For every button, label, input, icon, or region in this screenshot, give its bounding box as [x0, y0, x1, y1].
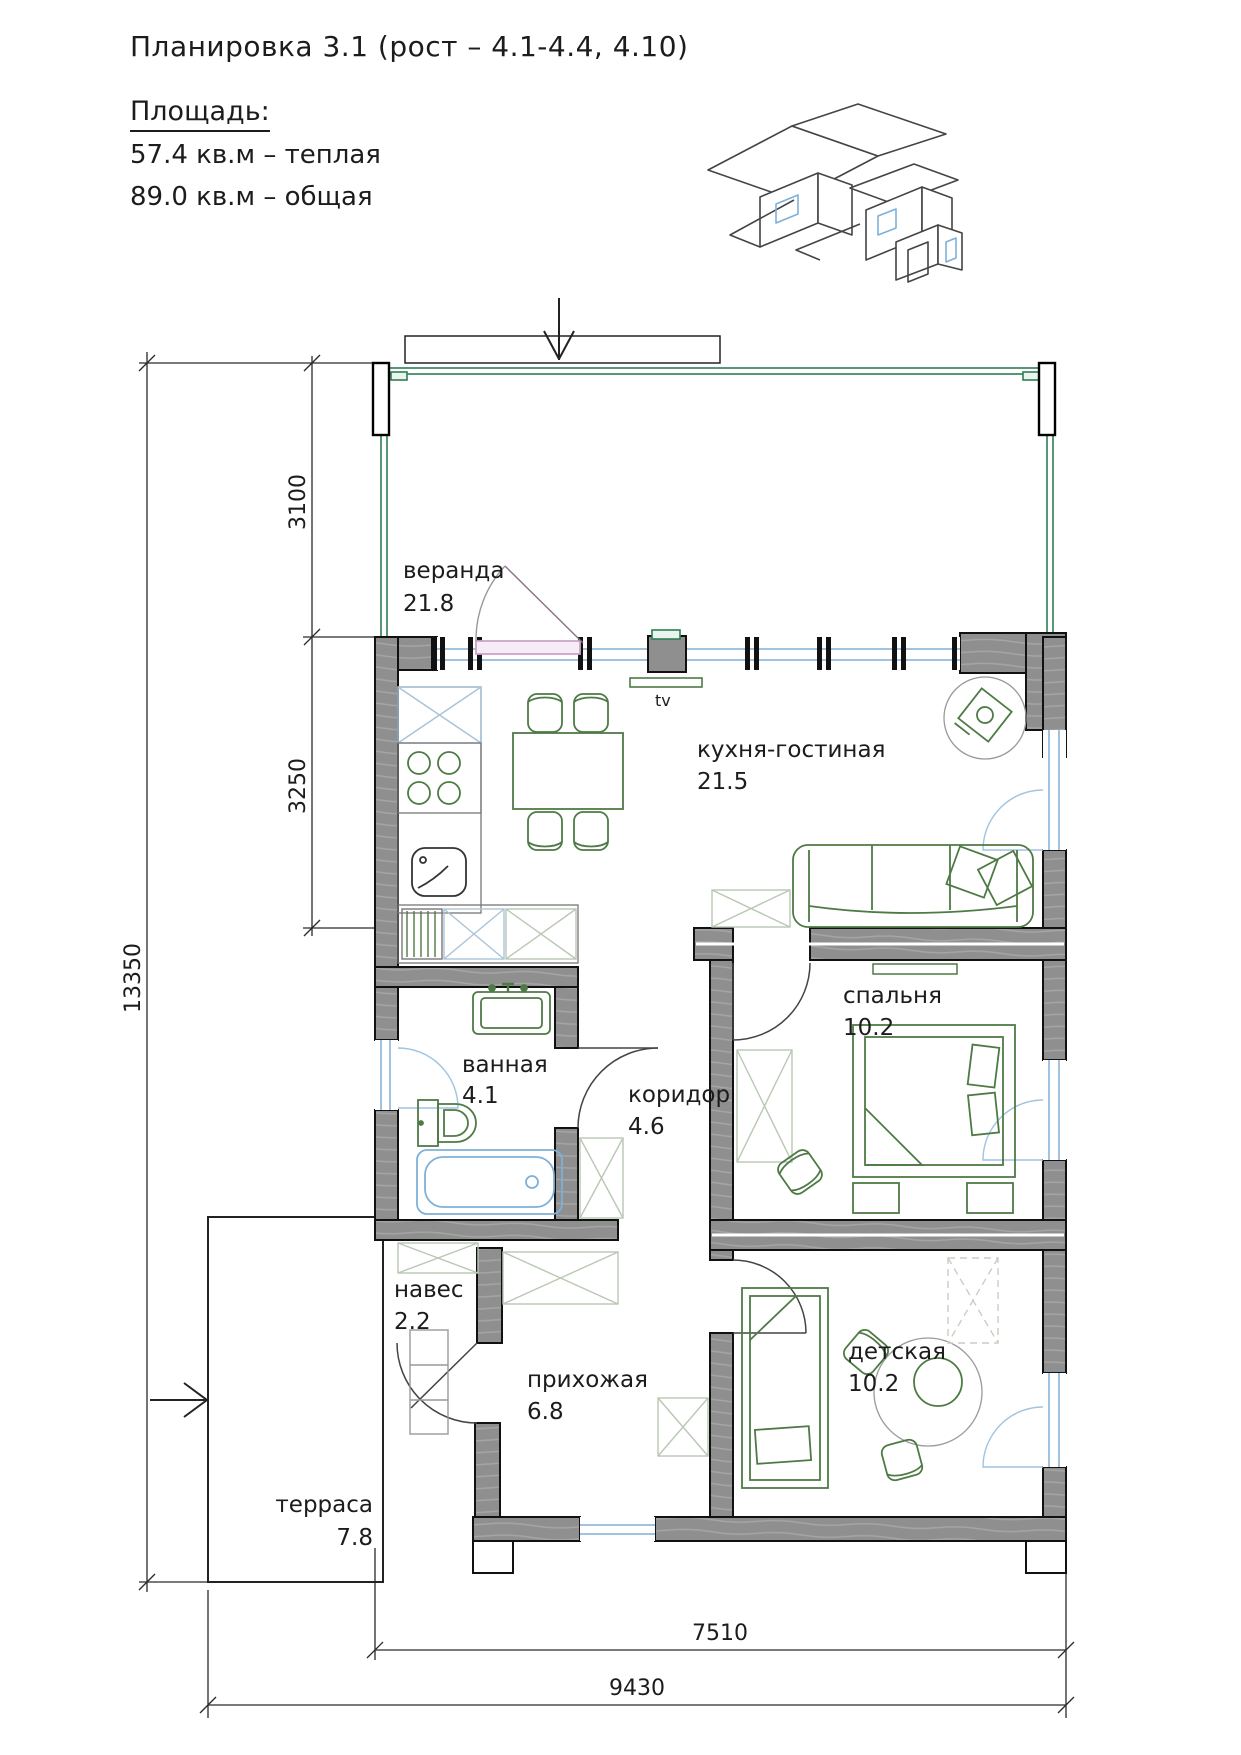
- hallway-bench: [658, 1398, 708, 1456]
- entry-arrow-terrace: [150, 1383, 207, 1417]
- hallway-wardrobe: [503, 1252, 618, 1304]
- label-corridor: коридор: [628, 1082, 730, 1108]
- dim-house-width: 7510: [692, 1621, 748, 1646]
- kids-wardrobe: [948, 1258, 998, 1343]
- dishwasher: [402, 909, 442, 959]
- bedroom-wardrobe: [737, 1050, 792, 1162]
- kitchen-sink: [412, 848, 466, 896]
- bathtub: [417, 1150, 562, 1214]
- label-kids: детская: [848, 1339, 946, 1365]
- kids-bed: [742, 1288, 828, 1488]
- label-kitchen: кухня-гостиная: [697, 737, 885, 763]
- stove: [398, 743, 481, 813]
- chair: [574, 812, 608, 850]
- floor-plan-drawing: 13350 3100 3250 7510 9430: [0, 0, 1241, 1755]
- fridge: [398, 687, 481, 743]
- dim-overall-height: 13350: [121, 943, 146, 1013]
- chair: [574, 694, 608, 732]
- sofa: [793, 845, 1033, 927]
- bedroom-armchair: [775, 1147, 825, 1197]
- canopy-shelving: [410, 1330, 448, 1434]
- window-kids-right: [983, 1373, 1066, 1467]
- foundation-footings: [473, 1541, 1066, 1573]
- chair: [528, 694, 562, 732]
- window-bath-left: [375, 1040, 458, 1110]
- dim-total-width: 9430: [609, 1676, 665, 1701]
- canopy-shelf-x: [398, 1243, 478, 1273]
- house-3d-sketch: [708, 104, 962, 282]
- bath-sink: [473, 984, 550, 1034]
- door-entrance: [397, 1343, 477, 1423]
- area-corridor: 4.6: [628, 1114, 665, 1140]
- dim-veranda-depth: 3100: [286, 474, 311, 530]
- door-bedroom: [733, 963, 810, 1040]
- label-terrace: терраса: [275, 1492, 373, 1518]
- label-canopy: навес: [394, 1277, 463, 1303]
- window-living-right: [983, 730, 1066, 850]
- entry-canopy-outline: [405, 336, 720, 363]
- veranda-walls: [381, 368, 1053, 637]
- kitchen-cabinet-x2: [506, 909, 576, 959]
- area-kids: 10.2: [848, 1371, 899, 1397]
- chair: [528, 812, 562, 850]
- area-bedroom: 10.2: [843, 1015, 894, 1041]
- area-canopy: 2.2: [394, 1309, 431, 1335]
- wood-stove: [944, 677, 1026, 759]
- bedroom-bed: [853, 1025, 1015, 1213]
- area-bath: 4.1: [462, 1083, 499, 1109]
- floor-plan-page: Планировка 3.1 (рост – 4.1-4.4, 4.10) Пл…: [0, 0, 1241, 1755]
- label-veranda: веранда: [403, 558, 504, 584]
- kitchen-cabinet-x1: [444, 909, 504, 959]
- bedroom-wall-shelf: [873, 964, 957, 974]
- dim-kitchen-depth: 3250: [286, 758, 311, 814]
- door-bottom-glazed: [580, 1517, 655, 1541]
- label-hallway: прихожая: [527, 1367, 648, 1393]
- sofa-side-cabinet: [712, 890, 790, 927]
- area-kitchen: 21.5: [697, 769, 748, 795]
- corridor-wardrobe: [580, 1138, 623, 1218]
- entry-arrow-top: [544, 298, 574, 360]
- tv-label: tv: [655, 691, 671, 710]
- area-veranda: 21.8: [403, 591, 454, 617]
- area-terrace: 7.8: [336, 1525, 373, 1551]
- label-bedroom: спальня: [843, 983, 942, 1009]
- area-hallway: 6.8: [527, 1399, 564, 1425]
- label-bath: ванная: [462, 1052, 548, 1078]
- dining-table: [513, 694, 623, 850]
